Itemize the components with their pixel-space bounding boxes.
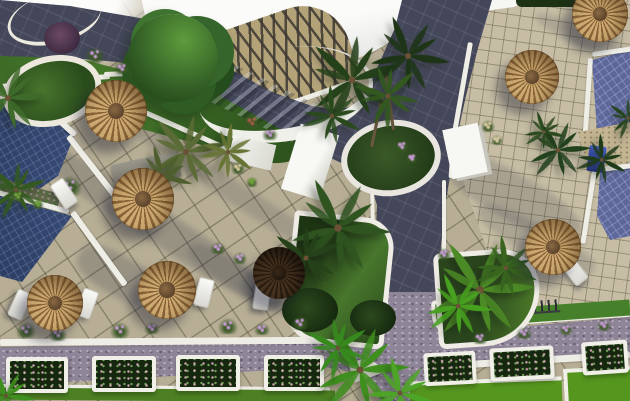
parasol-center — [48, 296, 63, 311]
flower-tuft — [85, 47, 105, 63]
parasol-center — [159, 282, 174, 297]
flower-tuft — [472, 332, 488, 345]
aerial-resort-render — [0, 0, 630, 401]
flower-tuft — [491, 135, 503, 145]
straw-parasol — [505, 50, 559, 104]
flower-tuft — [516, 327, 532, 340]
flower-tuft — [110, 322, 130, 338]
straw-parasol — [138, 261, 196, 319]
parasol-center — [546, 240, 561, 255]
parasol-center — [108, 103, 124, 119]
parasol-center — [135, 191, 151, 207]
flower-tuft — [437, 248, 451, 259]
flower-tuft — [218, 318, 238, 334]
palm-tree — [0, 54, 52, 142]
street-planter-box — [92, 356, 156, 392]
flower-tuft — [210, 242, 226, 255]
flower-tuft — [395, 140, 409, 151]
straw-parasol — [572, 0, 628, 42]
street-planter-box — [581, 339, 629, 375]
flower-tuft — [406, 153, 418, 163]
dark-straw-parasol — [253, 247, 305, 299]
straw-parasol — [27, 275, 83, 331]
palm-tree — [0, 148, 58, 231]
straw-parasol — [85, 80, 147, 142]
flower-tuft — [144, 322, 160, 335]
flower-tuft — [559, 323, 573, 334]
street-planter-box — [176, 355, 240, 391]
parasol-center — [272, 266, 286, 280]
straw-parasol — [525, 219, 581, 275]
palm-tree — [414, 262, 502, 350]
flower-tuft — [246, 177, 258, 187]
scene-items-layer — [0, 0, 630, 401]
flower-tuft — [11, 190, 25, 201]
flower-tuft — [254, 323, 270, 336]
flower-tuft — [243, 115, 261, 129]
sun-lounger — [193, 276, 216, 308]
flower-tuft — [291, 316, 309, 330]
flower-tuft — [262, 128, 278, 141]
parasol-center — [593, 7, 608, 22]
flower-tuft — [16, 322, 36, 338]
street-planter-box — [489, 345, 555, 381]
flower-tuft — [114, 62, 130, 75]
straw-parasol — [112, 168, 174, 230]
flower-tuft — [32, 199, 44, 209]
flower-tuft — [597, 319, 611, 330]
flower-tuft — [233, 252, 247, 263]
parasol-center — [525, 70, 539, 84]
flower-tuft — [231, 162, 245, 173]
flower-tuft — [481, 120, 495, 131]
